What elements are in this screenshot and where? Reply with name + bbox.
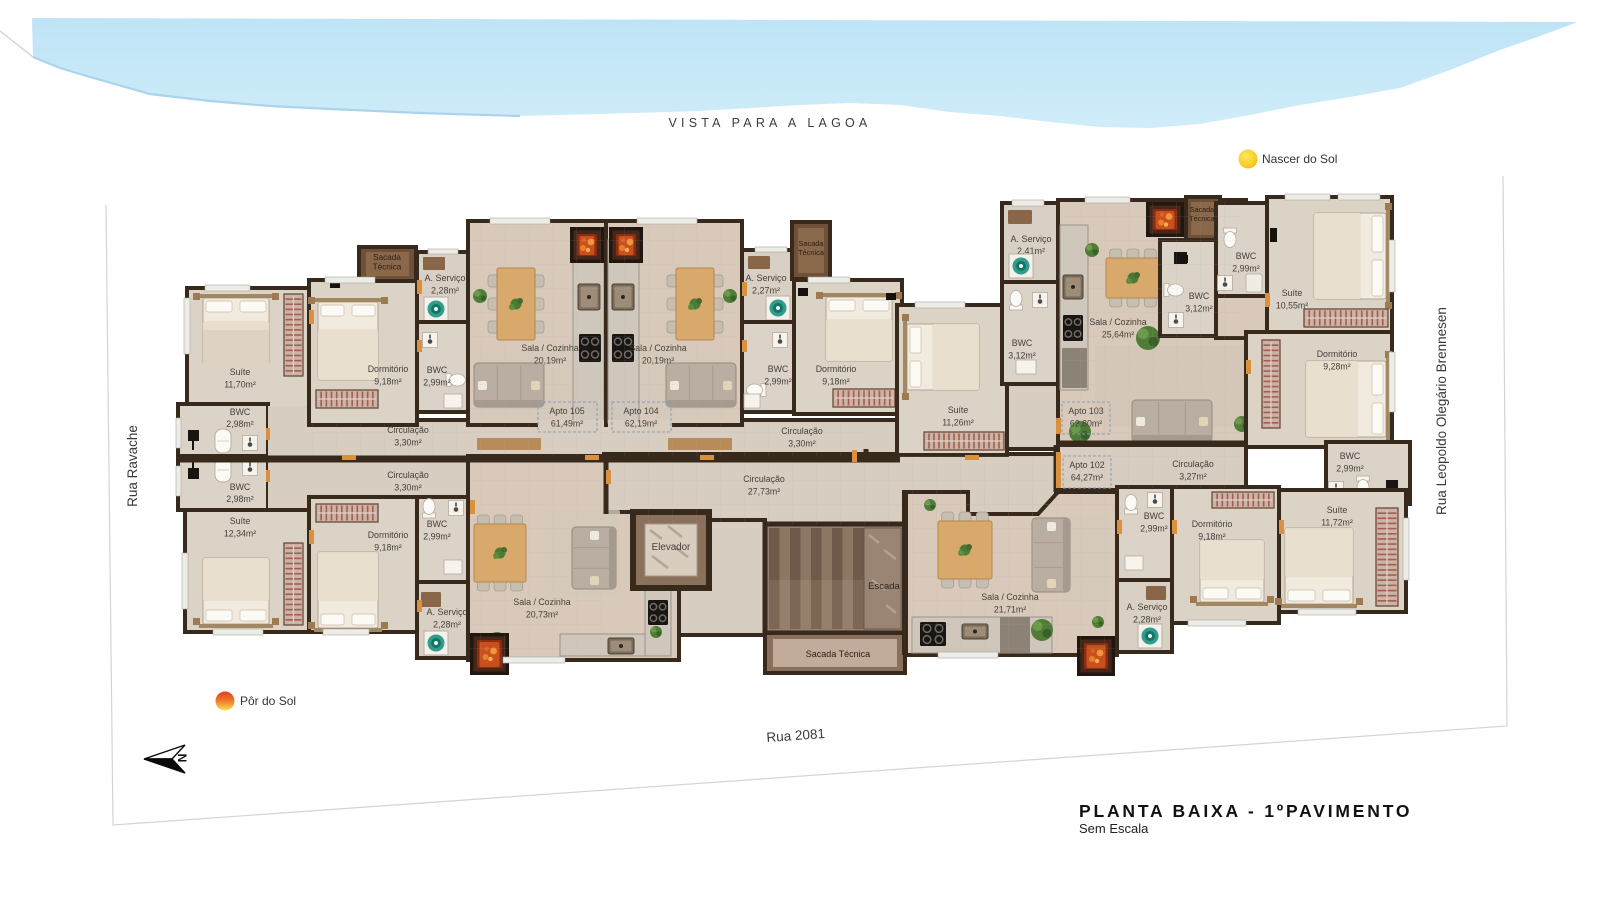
svg-text:9,28m²: 9,28m² [1323,362,1350,372]
svg-text:9,18m²: 9,18m² [1198,532,1225,542]
svg-text:10,55m²: 10,55m² [1276,301,1308,311]
svg-text:3,12m²: 3,12m² [1008,351,1035,361]
svg-text:Rua Leopoldo Olegário Brennese: Rua Leopoldo Olegário Brennesen [1434,307,1449,515]
svg-text:A. Serviço: A. Serviço [424,273,465,283]
svg-text:Sacada Técnica: Sacada Técnica [806,649,870,659]
svg-text:11,26m²: 11,26m² [942,418,974,428]
svg-text:N: N [175,754,189,763]
svg-text:Circulação: Circulação [387,470,429,480]
svg-text:Sacada: Sacada [798,239,824,248]
svg-text:2,99m²: 2,99m² [764,377,791,387]
svg-text:A. Serviço: A. Serviço [745,273,786,283]
svg-text:Nascer do Sol: Nascer do Sol [1262,152,1337,166]
svg-text:BWC: BWC [230,482,251,492]
svg-text:11,72m²: 11,72m² [1321,518,1353,528]
svg-text:2,99m²: 2,99m² [1140,524,1167,534]
svg-text:3,30m²: 3,30m² [394,483,421,493]
svg-text:Dormitório: Dormitório [368,364,409,374]
svg-text:BWC: BWC [768,364,789,374]
svg-text:BWC: BWC [427,365,448,375]
svg-text:Suíte: Suíte [1282,288,1303,298]
svg-text:Técnica: Técnica [373,263,402,272]
svg-text:11,70m²: 11,70m² [224,380,256,390]
svg-text:Suíte: Suíte [948,405,969,415]
svg-text:A. Serviço: A. Serviço [1010,234,1051,244]
svg-text:A. Serviço: A. Serviço [1126,602,1167,612]
svg-text:2,27m²: 2,27m² [752,286,780,296]
svg-text:Sacada: Sacada [373,253,401,262]
svg-text:Dormitório: Dormitório [816,364,857,374]
svg-text:2,28m²: 2,28m² [1133,615,1161,625]
svg-text:2,28m²: 2,28m² [431,286,459,296]
svg-text:Dormitório: Dormitório [1317,349,1358,359]
svg-text:Suíte: Suíte [1327,505,1348,515]
svg-text:BWC: BWC [1012,338,1033,348]
svg-text:2,99m²: 2,99m² [1336,464,1363,474]
svg-text:9,18m²: 9,18m² [374,377,401,387]
svg-text:9,18m²: 9,18m² [822,377,849,387]
svg-text:Suíte: Suíte [230,516,251,526]
svg-text:Técnica: Técnica [798,248,825,257]
svg-text:Dormitório: Dormitório [1192,519,1233,529]
svg-text:Sem Escala: Sem Escala [1079,821,1149,836]
svg-text:Rua Ravache: Rua Ravache [125,425,140,507]
svg-text:2,99m²: 2,99m² [423,378,450,388]
svg-text:Suíte: Suíte [230,367,251,377]
svg-text:BWC: BWC [1340,451,1361,461]
svg-text:Escada: Escada [868,581,900,592]
svg-text:PLANTA BAIXA - 1ºPAVIMENTO: PLANTA BAIXA - 1ºPAVIMENTO [1079,801,1412,821]
svg-text:Elevador: Elevador [652,542,691,553]
svg-text:Dormitório: Dormitório [368,530,409,540]
svg-text:BWC: BWC [230,407,251,417]
svg-text:Pôr do Sol: Pôr do Sol [240,694,296,708]
svg-text:VISTA PARA A LAGOA: VISTA PARA A LAGOA [669,116,872,130]
svg-text:A. Serviço: A. Serviço [426,607,467,617]
svg-text:2,98m²: 2,98m² [226,494,253,504]
svg-text:BWC: BWC [1144,511,1165,521]
svg-text:2,28m²: 2,28m² [433,620,461,630]
svg-text:BWC: BWC [427,519,448,529]
svg-text:9,18m²: 9,18m² [374,543,401,553]
svg-text:2,99m²: 2,99m² [423,532,450,542]
svg-text:12,34m²: 12,34m² [224,529,256,539]
svg-text:2,98m²: 2,98m² [226,419,253,429]
